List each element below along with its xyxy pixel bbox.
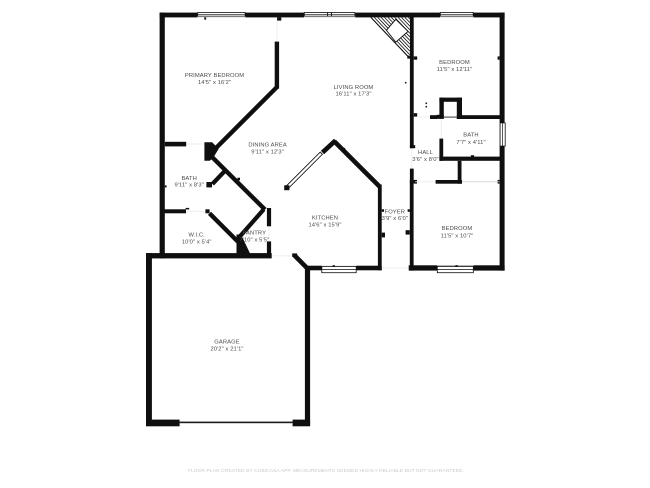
svg-text:14'5" x 16'2": 14'5" x 16'2" <box>198 80 231 86</box>
svg-text:BATH: BATH <box>181 176 196 182</box>
svg-text:7'10" x 5'5": 7'10" x 5'5" <box>239 238 269 244</box>
svg-text:20'2" x 21'1": 20'2" x 21'1" <box>210 346 243 352</box>
svg-text:LIVING ROOM: LIVING ROOM <box>334 85 374 91</box>
svg-text:HALL: HALL <box>418 150 434 156</box>
svg-text:BEDROOM: BEDROOM <box>439 60 470 66</box>
svg-text:FLOOR PLAN CREATED BY CUBICASA: FLOOR PLAN CREATED BY CUBICASA APP. MEAS… <box>188 468 464 474</box>
svg-text:BEDROOM: BEDROOM <box>442 226 473 232</box>
svg-text:10'0" x 5'4": 10'0" x 5'4" <box>182 239 212 245</box>
svg-text:PANTRY: PANTRY <box>243 231 267 237</box>
svg-text:KITCHEN: KITCHEN <box>312 216 338 222</box>
svg-text:GARAGE: GARAGE <box>214 339 239 345</box>
svg-text:DINING AREA: DINING AREA <box>248 142 286 148</box>
svg-text:3'6" x 8'0": 3'6" x 8'0" <box>412 157 438 163</box>
svg-text:W.I.C.: W.I.C. <box>189 232 206 238</box>
svg-text:11'5" x 10'7": 11'5" x 10'7" <box>441 233 474 239</box>
svg-text:PRIMARY BEDROOM: PRIMARY BEDROOM <box>185 73 244 79</box>
svg-text:16'11" x 17'3": 16'11" x 17'3" <box>336 92 372 98</box>
svg-text:14'6" x 15'9": 14'6" x 15'9" <box>308 223 341 229</box>
svg-text:7'7" x 4'11": 7'7" x 4'11" <box>456 140 485 146</box>
svg-text:9'11" x 12'3": 9'11" x 12'3" <box>251 150 284 156</box>
svg-text:BATH: BATH <box>463 132 478 138</box>
svg-text:3'9" x 6'0": 3'9" x 6'0" <box>382 216 408 222</box>
svg-text:11'5" x 12'11": 11'5" x 12'11" <box>437 67 473 73</box>
svg-text:FOYER: FOYER <box>385 209 405 215</box>
svg-text:9'11" x 8'3": 9'11" x 8'3" <box>175 183 204 189</box>
